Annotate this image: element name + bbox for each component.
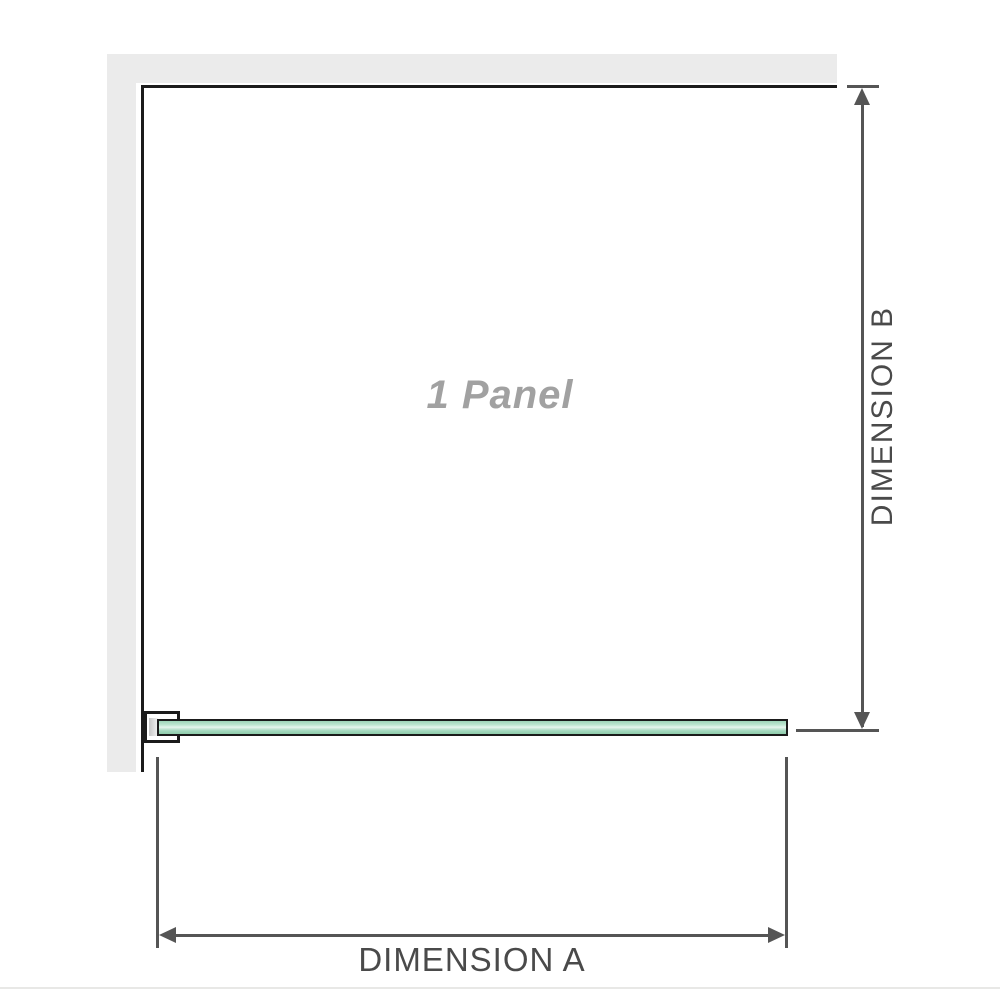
dim-a-line — [166, 934, 780, 937]
glass-panel — [157, 719, 788, 736]
room-outline-top — [141, 85, 837, 88]
dim-b-label: DIMENSION B — [866, 286, 900, 546]
dim-a-left-extension — [156, 757, 159, 948]
dim-b-arrow-down-icon — [854, 712, 870, 729]
wall-left-bar — [107, 54, 136, 772]
dim-b-bottom-tick — [796, 729, 879, 732]
dim-b-arrow-up-icon — [854, 88, 870, 105]
panel-count-label: 1 Panel — [350, 373, 650, 418]
dim-a-arrow-left-icon — [159, 927, 176, 943]
room-outline-left — [141, 85, 144, 772]
dim-a-label: DIMENSION A — [272, 941, 672, 979]
panel-dimension-diagram: 1 Panel DIMENSION B DIMENSION A — [0, 0, 1000, 1000]
page-bottom-divider — [0, 987, 1000, 989]
wall-top-bar — [107, 54, 837, 83]
dim-b-line — [861, 95, 864, 727]
dim-a-right-extension — [785, 757, 788, 948]
dim-a-arrow-right-icon — [768, 927, 785, 943]
